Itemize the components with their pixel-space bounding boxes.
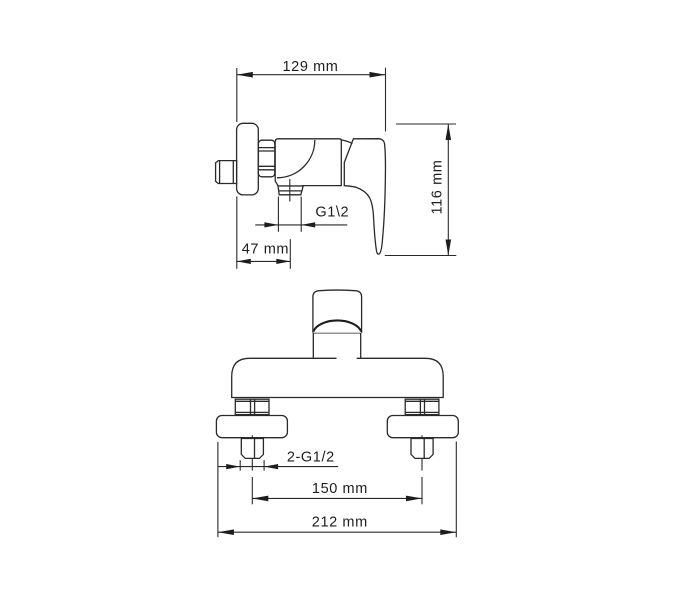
- svg-text:212 mm: 212 mm: [312, 515, 368, 531]
- svg-text:2-G1/2: 2-G1/2: [287, 449, 335, 465]
- svg-text:G1\2: G1\2: [315, 205, 349, 221]
- svg-text:129 mm: 129 mm: [283, 59, 339, 75]
- svg-text:150 mm: 150 mm: [312, 481, 368, 497]
- svg-text:47 mm: 47 mm: [242, 241, 289, 257]
- svg-text:116 mm: 116 mm: [430, 160, 446, 215]
